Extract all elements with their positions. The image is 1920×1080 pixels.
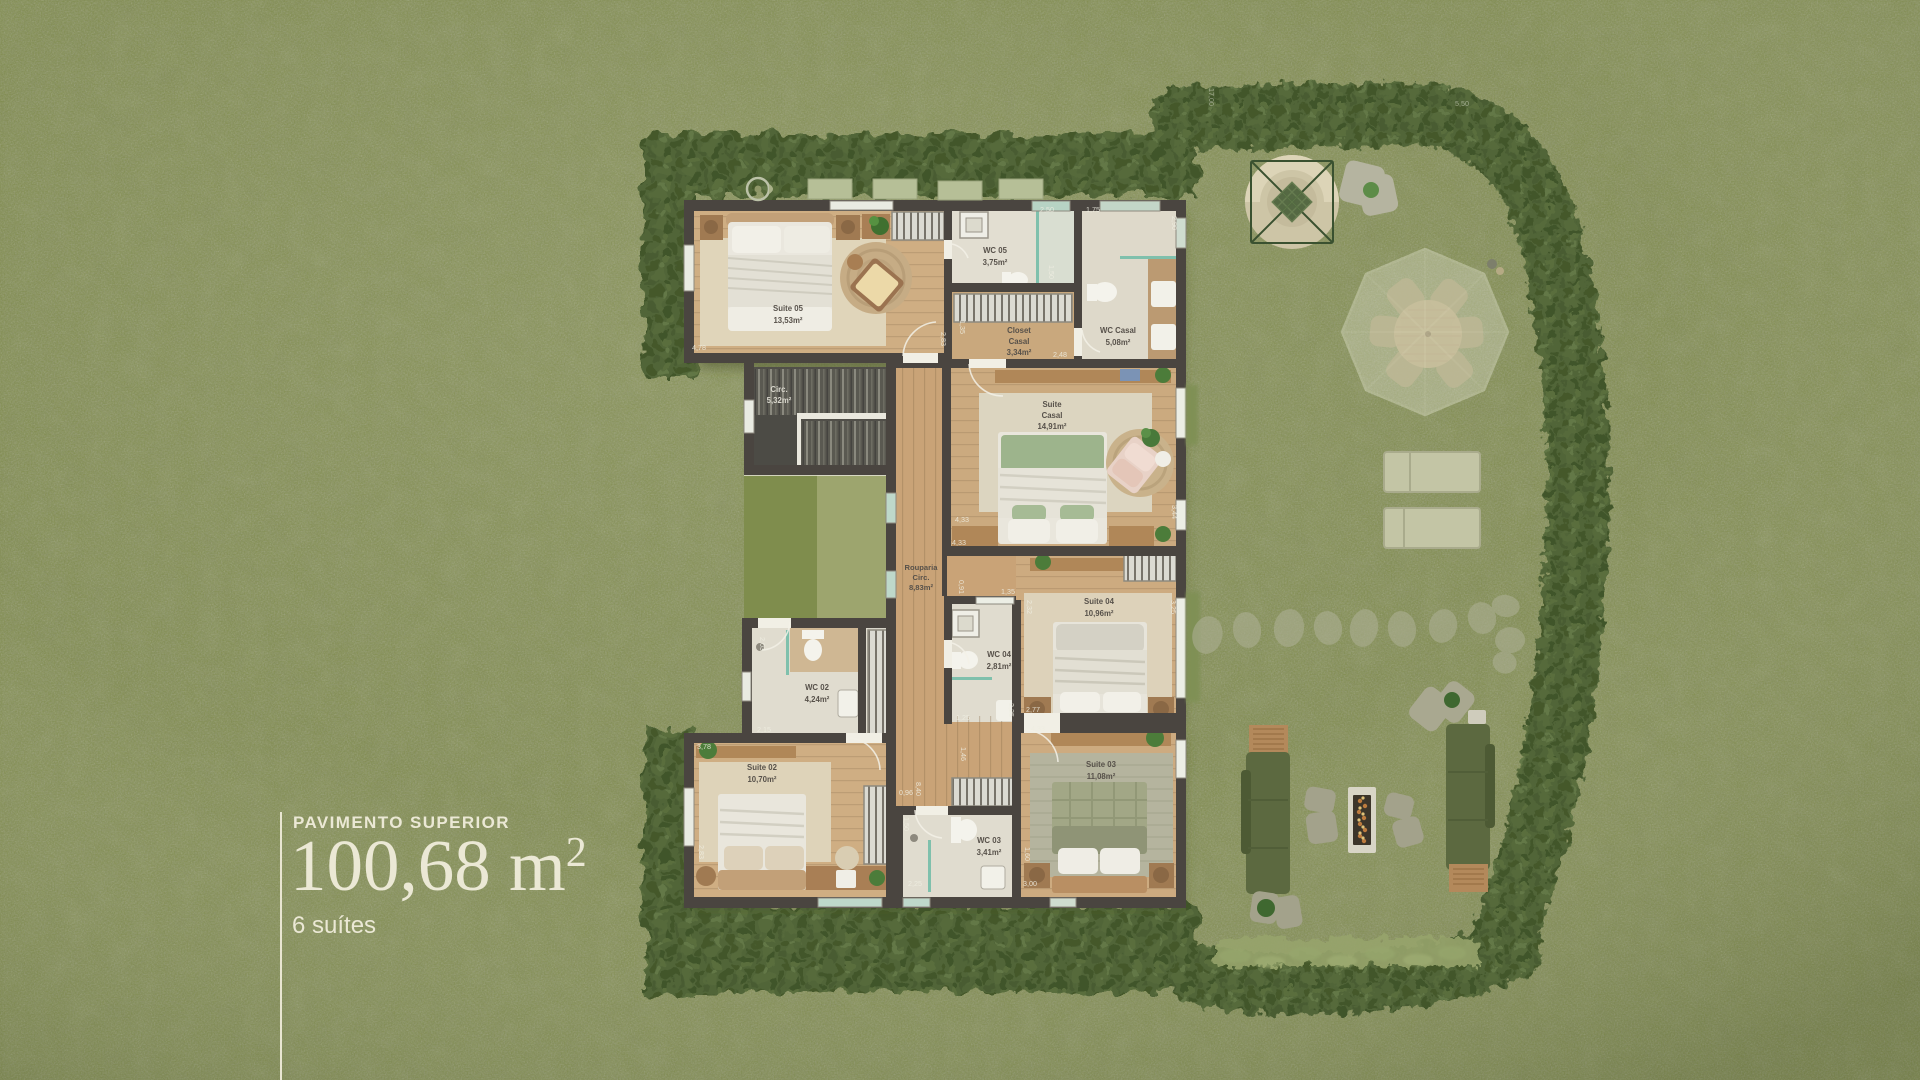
svg-text:13,53m²: 13,53m² — [773, 316, 802, 325]
svg-text:2,48: 2,48 — [1053, 350, 1067, 359]
svg-text:2,83: 2,83 — [939, 332, 948, 346]
svg-text:1,35: 1,35 — [958, 320, 967, 334]
svg-text:1,46: 1,46 — [959, 747, 968, 761]
svg-text:Rouparia: Rouparia — [905, 563, 939, 572]
svg-text:Suite 04: Suite 04 — [1084, 597, 1115, 606]
svg-text:8,83m²: 8,83m² — [909, 583, 934, 592]
svg-text:5,50: 5,50 — [1455, 99, 1469, 108]
svg-text:Circ.: Circ. — [770, 385, 787, 394]
svg-text:17,00: 17,00 — [1207, 88, 1216, 106]
svg-text:3,00: 3,00 — [1023, 879, 1037, 888]
svg-text:Suite 05: Suite 05 — [773, 304, 804, 313]
svg-text:Suite 03: Suite 03 — [1086, 760, 1117, 769]
svg-text:WC 04: WC 04 — [987, 650, 1011, 659]
svg-text:3,44: 3,44 — [1170, 505, 1179, 519]
svg-text:Circ.: Circ. — [913, 573, 930, 582]
svg-text:Casal: Casal — [1009, 337, 1030, 346]
svg-text:2,32: 2,32 — [1025, 600, 1034, 614]
svg-text:5,08m²: 5,08m² — [1106, 338, 1131, 347]
svg-text:1,60: 1,60 — [1023, 847, 1032, 861]
svg-text:2,03: 2,03 — [758, 637, 767, 651]
svg-text:Suite 02: Suite 02 — [747, 763, 778, 772]
svg-text:3,75m²: 3,75m² — [983, 258, 1008, 267]
svg-text:5,32m²: 5,32m² — [767, 396, 792, 405]
svg-text:0,96: 0,96 — [899, 788, 913, 797]
svg-text:2,25: 2,25 — [1007, 703, 1016, 717]
svg-text:2,25: 2,25 — [908, 879, 922, 888]
svg-text:WC 05: WC 05 — [983, 246, 1007, 255]
svg-text:WC 03: WC 03 — [977, 836, 1001, 845]
svg-text:1,75: 1,75 — [1086, 205, 1100, 214]
svg-text:2,83: 2,83 — [697, 845, 706, 859]
svg-text:10,70m²: 10,70m² — [747, 775, 776, 784]
svg-text:2,77: 2,77 — [1026, 705, 1040, 714]
svg-text:14,91m²: 14,91m² — [1037, 422, 1066, 431]
svg-text:8,40: 8,40 — [914, 782, 923, 796]
svg-text:3,41m²: 3,41m² — [977, 848, 1002, 857]
svg-text:1,25: 1,25 — [956, 713, 970, 722]
svg-text:4,33: 4,33 — [1031, 724, 1045, 733]
svg-text:1,35: 1,35 — [1001, 587, 1015, 596]
svg-text:3,34m²: 3,34m² — [1007, 348, 1032, 357]
svg-text:4,33: 4,33 — [955, 515, 969, 524]
svg-text:2,15: 2,15 — [757, 725, 771, 734]
svg-text:Closet: Closet — [1007, 326, 1031, 335]
svg-text:Suite: Suite — [1042, 400, 1062, 409]
svg-text:100,68 m2: 100,68 m2 — [290, 825, 587, 906]
svg-text:2,90: 2,90 — [1170, 216, 1179, 230]
svg-text:10,96m²: 10,96m² — [1084, 609, 1113, 618]
svg-text:1,50: 1,50 — [1047, 265, 1056, 279]
svg-text:0,91: 0,91 — [957, 580, 966, 594]
svg-text:6 suítes: 6 suítes — [292, 912, 376, 939]
svg-text:4,33: 4,33 — [952, 538, 966, 547]
svg-text:WC 02: WC 02 — [805, 683, 829, 692]
svg-text:3,25: 3,25 — [1169, 600, 1178, 614]
svg-text:1,50: 1,50 — [902, 817, 911, 831]
svg-text:3,78: 3,78 — [697, 742, 711, 751]
svg-text:4,24m²: 4,24m² — [805, 695, 830, 704]
svg-text:11,08m²: 11,08m² — [1087, 772, 1116, 781]
svg-text:4,78: 4,78 — [692, 343, 706, 352]
svg-text:Casal: Casal — [1042, 411, 1063, 420]
svg-text:2,50: 2,50 — [1040, 205, 1054, 214]
svg-text:2,81m²: 2,81m² — [987, 662, 1012, 671]
svg-text:WC Casal: WC Casal — [1100, 326, 1136, 335]
